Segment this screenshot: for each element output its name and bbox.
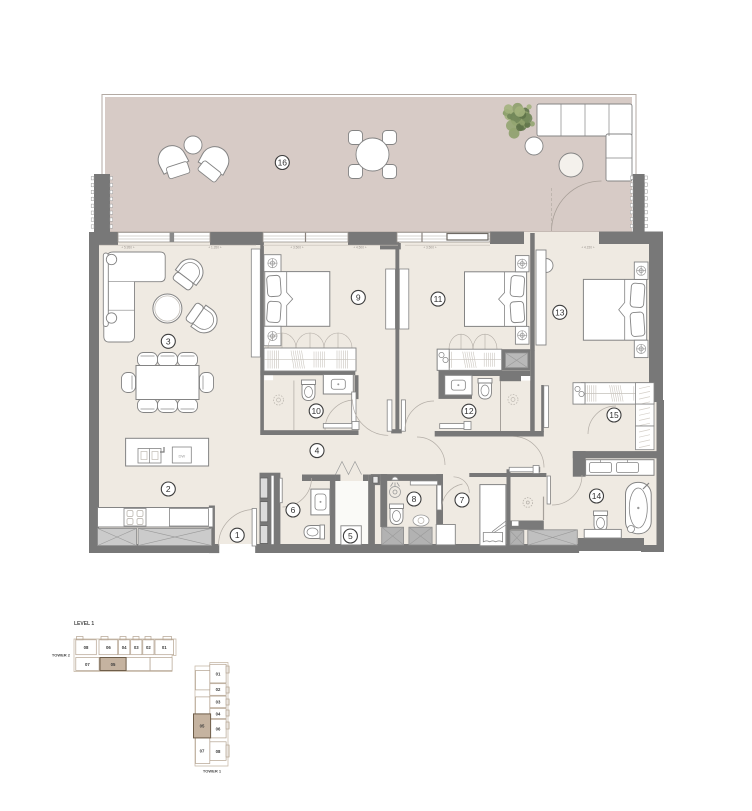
svg-text:04: 04 — [216, 711, 221, 716]
svg-text:TOWER 2: TOWER 2 — [52, 653, 71, 658]
svg-text:08: 08 — [216, 749, 221, 754]
svg-text:02: 02 — [216, 687, 221, 692]
svg-text:+ 1.350 +: + 1.350 + — [208, 246, 222, 250]
svg-text:03: 03 — [134, 645, 139, 650]
svg-text:06: 06 — [106, 645, 111, 650]
svg-text:+ 4.500 +: + 4.500 + — [353, 246, 367, 250]
svg-text:01: 01 — [162, 645, 167, 650]
svg-text:04: 04 — [122, 645, 127, 650]
svg-text:03: 03 — [216, 700, 221, 705]
svg-text:11: 11 — [434, 294, 443, 304]
svg-text:1: 1 — [235, 530, 240, 540]
svg-text:07: 07 — [85, 662, 90, 667]
svg-text:+ 3.500 +: + 3.500 + — [290, 246, 304, 250]
svg-text:14: 14 — [592, 491, 602, 501]
svg-text:+ 5.950 +: + 5.950 + — [121, 246, 135, 250]
svg-text:05: 05 — [200, 724, 205, 729]
svg-text:LEVEL 1: LEVEL 1 — [74, 621, 94, 627]
svg-text:05: 05 — [111, 662, 116, 667]
svg-text:5: 5 — [348, 531, 353, 541]
svg-text:15: 15 — [609, 410, 619, 420]
svg-text:7: 7 — [460, 495, 465, 505]
svg-text:8: 8 — [412, 494, 417, 504]
svg-text:9: 9 — [356, 292, 361, 302]
svg-text:07: 07 — [200, 749, 205, 754]
svg-text:13: 13 — [555, 307, 565, 317]
svg-text:08: 08 — [84, 645, 89, 650]
svg-text:16: 16 — [278, 158, 288, 168]
svg-text:6: 6 — [291, 505, 296, 515]
svg-text:01: 01 — [216, 671, 221, 676]
svg-text:+ 4.150 +: + 4.150 + — [581, 246, 595, 250]
svg-text:TOWER 1: TOWER 1 — [203, 769, 222, 774]
svg-text:2: 2 — [166, 484, 171, 494]
svg-text:06: 06 — [216, 726, 221, 731]
svg-text:+ 3.500 +: + 3.500 + — [423, 246, 437, 250]
svg-text:3: 3 — [166, 336, 171, 346]
svg-text:DW: DW — [178, 454, 185, 459]
svg-text:10: 10 — [311, 406, 321, 416]
svg-text:12: 12 — [464, 406, 474, 416]
svg-text:02: 02 — [146, 645, 151, 650]
svg-text:4: 4 — [315, 446, 320, 456]
